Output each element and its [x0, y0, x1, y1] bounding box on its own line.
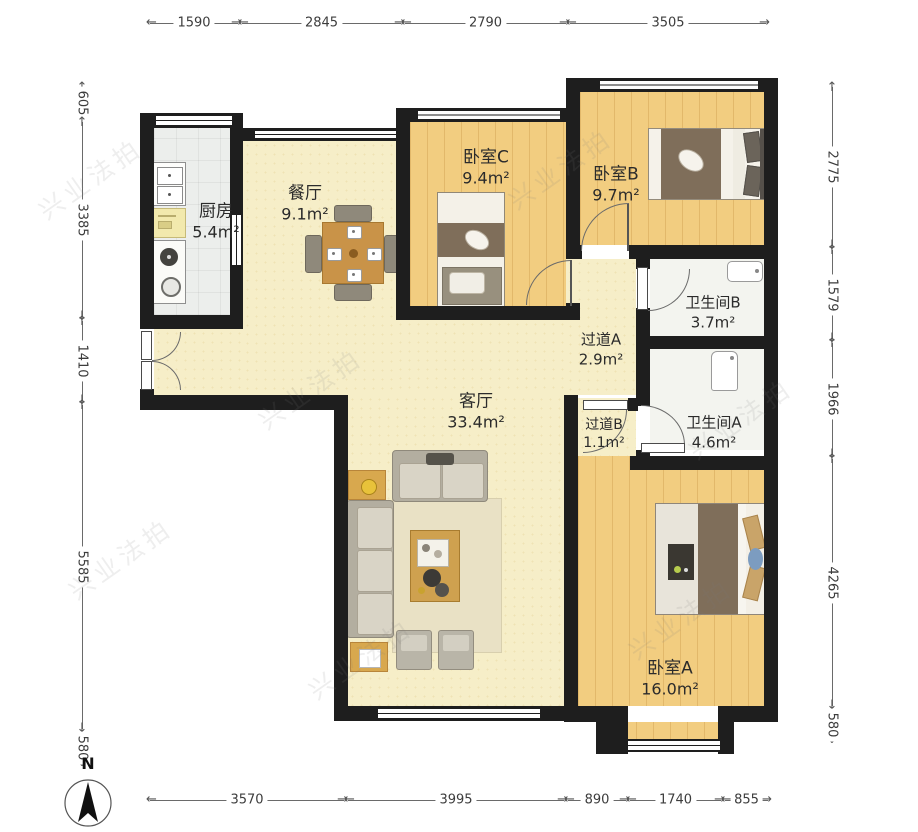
bed-duvet [438, 223, 504, 257]
room-area: 9.1m² [281, 205, 328, 226]
room-area: 9.4m² [462, 169, 509, 190]
bed-pillow [449, 272, 485, 294]
wall [636, 349, 650, 406]
room-area: 2.9m² [579, 350, 623, 370]
room-label-hall-b: 过道B 1.1m² [583, 416, 625, 452]
bed-pillow [461, 226, 493, 255]
side-table-top [348, 470, 386, 500]
arrow-left-icon: ← [564, 793, 575, 806]
sofa-cushion [357, 593, 393, 635]
dimension-label: 890 [581, 793, 614, 808]
bedroom-c-window [418, 109, 560, 121]
wall [764, 78, 778, 722]
wall [566, 245, 582, 259]
room-name: 卧室A [641, 658, 699, 680]
dimension-left-4: ↑ ↓ 5585 [73, 403, 91, 731]
living-upper-floor [396, 320, 566, 395]
ottoman [438, 630, 474, 670]
room-name: 餐厅 [281, 183, 328, 205]
room-label-bedroom-c: 卧室C 9.4m² [462, 147, 509, 190]
room-name: 卧室B [592, 164, 639, 186]
faucet-dot [755, 269, 759, 273]
sofa-cushion [442, 463, 484, 499]
bath-a-washer [711, 351, 738, 391]
side-table-bottom [350, 642, 388, 672]
bedroom-a-bed [655, 503, 765, 615]
room-label-bath-a: 卫生间A 4.6m² [686, 414, 741, 453]
decor-gold-dot [418, 587, 425, 594]
coffee-table [410, 530, 460, 602]
compass-n-label: N [81, 754, 94, 773]
room-label-bedroom-b: 卧室B 9.7m² [592, 164, 639, 207]
dimension-right-4: ↑ ↓ 4265 [823, 457, 841, 708]
wall [636, 336, 778, 349]
plate [347, 226, 362, 239]
wall [636, 308, 650, 336]
room-area: 3.7m² [685, 313, 740, 333]
tray [417, 539, 449, 567]
arrow-up-icon: ↑ [77, 399, 88, 412]
wall [334, 395, 348, 720]
dining-window [255, 129, 396, 140]
sofa-cushion [357, 507, 393, 549]
dimension-label: 5585 [75, 546, 90, 587]
wall [564, 395, 578, 720]
room-area: 1.1m² [583, 434, 625, 452]
dimension-label: 1590 [173, 16, 214, 31]
wall [629, 245, 778, 259]
dimension-left-2: ↑ ↓ 3385 [73, 120, 91, 319]
bed-cushion-blue [748, 548, 763, 570]
board-line [158, 215, 176, 217]
dimension-bottom-5: ← → 855 [723, 791, 770, 809]
dimension-right-2: ↑ ↓ 1579 [823, 248, 841, 341]
entry-door-leaf [141, 361, 152, 390]
arrow-up-icon: ↑ [827, 244, 838, 257]
napkin [359, 649, 381, 668]
dimension-label: 3995 [435, 793, 476, 808]
bedroom-c-bed [437, 192, 505, 307]
ottoman-top [443, 635, 469, 651]
entry-door-leaf [141, 331, 152, 360]
room-label-bedroom-a: 卧室A 16.0m² [641, 658, 699, 701]
wall [140, 395, 348, 410]
drain-dot [168, 174, 171, 177]
wall [734, 706, 778, 722]
room-label-living: 客厅 33.4m² [447, 391, 505, 434]
washer-dot [730, 356, 734, 360]
wall [566, 78, 580, 259]
bay-window [628, 739, 720, 752]
tray-item [434, 550, 442, 558]
wall [566, 303, 580, 320]
dimension-right-3: ↑ ↓ 1966 [823, 341, 841, 457]
arrow-up-icon: ↑ [827, 337, 838, 350]
bed-panel [656, 504, 699, 614]
room-area: 16.0m² [641, 680, 699, 701]
dimension-right-1: ↑ ↓ 2775 [823, 85, 841, 248]
room-area: 9.7m² [592, 186, 639, 207]
hall-b-door-leaf [583, 400, 628, 410]
dimension-right-5: ↓ 580 [823, 708, 841, 742]
room-name: 过道B [583, 416, 625, 434]
living-window [378, 707, 540, 720]
dimension-label: 580 [825, 709, 840, 742]
arrow-left-icon: ← [401, 16, 412, 29]
sofa-throw [426, 453, 454, 465]
arrow-up-icon: ↑ [827, 453, 838, 466]
arrow-left-icon: ← [626, 793, 637, 806]
plate [327, 248, 342, 261]
dimension-top-2: ← → 2845 [240, 14, 403, 32]
arrow-left-icon: ← [238, 16, 249, 29]
bed-pillow [674, 145, 708, 177]
bath-b-door-leaf [637, 267, 648, 310]
dimension-bottom-4: ← → 1740 [628, 791, 723, 809]
dimension-label: 1410 [75, 340, 90, 381]
board-item [158, 221, 172, 229]
wall [628, 398, 638, 411]
dimension-label: 2790 [465, 16, 506, 31]
room-area: 5.4m² [192, 223, 239, 244]
room-label-bath-b: 卫生间B 3.7m² [685, 294, 740, 333]
hall-a-floor [566, 259, 636, 395]
dimension-top-4: ← → 3505 [568, 14, 768, 32]
dimension-label: 2775 [825, 146, 840, 187]
arrow-left-icon: ← [344, 793, 355, 806]
compass: N [62, 776, 114, 828]
kitchen-counter-board [152, 208, 186, 238]
room-area: 33.4m² [447, 413, 505, 434]
floor-plan-canvas: 厨房 5.4m² 餐厅 9.1m² 卧室C 9.4m² 卧室B 9.7m² 卫生… [0, 0, 918, 832]
table-centerpiece [349, 249, 358, 258]
arrow-left-icon: ← [146, 793, 157, 806]
dimension-top-1: ← → 1590 [148, 14, 240, 32]
white-dot [684, 568, 688, 572]
room-name: 厨房 [192, 201, 239, 223]
room-name: 客厅 [447, 391, 505, 413]
sofa-loveseat [392, 450, 488, 502]
bed-dark-box [668, 544, 694, 580]
bedroom-c-door-leaf [570, 260, 572, 306]
kitchen-sink [152, 162, 186, 206]
wall [140, 113, 154, 329]
dimension-bottom-3: ← → 890 [566, 791, 628, 809]
dimension-left-3: ↑ ↓ 1410 [73, 319, 91, 403]
ottoman [396, 630, 432, 670]
bath-a-door-leaf [641, 443, 685, 453]
tray-item [422, 544, 430, 552]
dining-chair-left [305, 235, 322, 273]
burner-large [160, 248, 178, 266]
wall [398, 306, 580, 320]
sink-basin [157, 167, 183, 185]
arrow-up-icon: ↑ [827, 81, 838, 94]
wall [630, 456, 778, 470]
sofa-cushion [399, 463, 441, 499]
dimension-label: 1579 [825, 274, 840, 315]
dimension-label: 2845 [301, 16, 342, 31]
dining-chair-top [334, 205, 372, 222]
sofa-left [346, 500, 394, 638]
bed-duvet [698, 504, 738, 614]
arrow-up-icon: ↑ [77, 315, 88, 328]
arrow-up-icon: ↑ [77, 116, 88, 129]
room-name: 过道A [579, 331, 623, 351]
dimension-label: 3570 [226, 793, 267, 808]
plate-dot [332, 252, 335, 255]
arrow-left-icon: ← [566, 16, 577, 29]
dimension-label: 4265 [825, 562, 840, 603]
room-area: 4.6m² [686, 433, 741, 453]
wall [396, 108, 410, 320]
dimension-top-3: ← → 2790 [403, 14, 568, 32]
plate-dot [352, 230, 355, 233]
sofa-cushion [357, 550, 393, 592]
drain-dot [168, 193, 171, 196]
room-name: 卫生间A [686, 414, 741, 434]
ottoman-top [401, 635, 427, 651]
arrow-left-icon: ← [146, 16, 157, 29]
bedroom-b-door-leaf [627, 204, 629, 251]
wall [140, 315, 243, 329]
arrow-right-icon: → [759, 16, 770, 29]
wall [718, 706, 734, 754]
room-name: 卧室C [462, 147, 509, 169]
room-name: 卫生间B [685, 294, 740, 314]
bath-b-sink [727, 261, 763, 282]
bedroom-b-bed [648, 128, 764, 200]
bed-duvet [661, 129, 721, 199]
bed-blanket [442, 267, 502, 305]
burner-center [167, 255, 171, 259]
sink-basin [157, 186, 183, 204]
room-label-kitchen: 厨房 5.4m² [192, 201, 239, 244]
dimension-label: 3505 [647, 16, 688, 31]
room-label-dining: 餐厅 9.1m² [281, 183, 328, 226]
plate [367, 248, 382, 261]
dimension-label: 1740 [655, 793, 696, 808]
wall [596, 706, 628, 754]
dimension-bottom-1: ← → 3570 [148, 791, 346, 809]
dimension-label: 855 [730, 793, 763, 808]
green-dot [674, 566, 681, 573]
dimension-label: 605 [75, 86, 90, 119]
dimension-bottom-2: ← → 3995 [346, 791, 566, 809]
north-arrow-icon [62, 776, 114, 828]
decor-dark-circle [435, 583, 449, 597]
dining-table [322, 222, 384, 284]
dimension-label: 1966 [825, 378, 840, 419]
kitchen-window [156, 114, 232, 127]
bedroom-b-window [600, 79, 758, 91]
plate-dot [352, 273, 355, 276]
plate-dot [372, 252, 375, 255]
dining-chair-bottom [334, 284, 372, 301]
burner-small [161, 277, 181, 297]
decor-bowl [361, 479, 377, 495]
dimension-label: 3385 [75, 199, 90, 240]
plate [347, 269, 362, 282]
room-label-hall-a: 过道A 2.9m² [579, 331, 623, 370]
kitchen-stove [152, 240, 186, 304]
